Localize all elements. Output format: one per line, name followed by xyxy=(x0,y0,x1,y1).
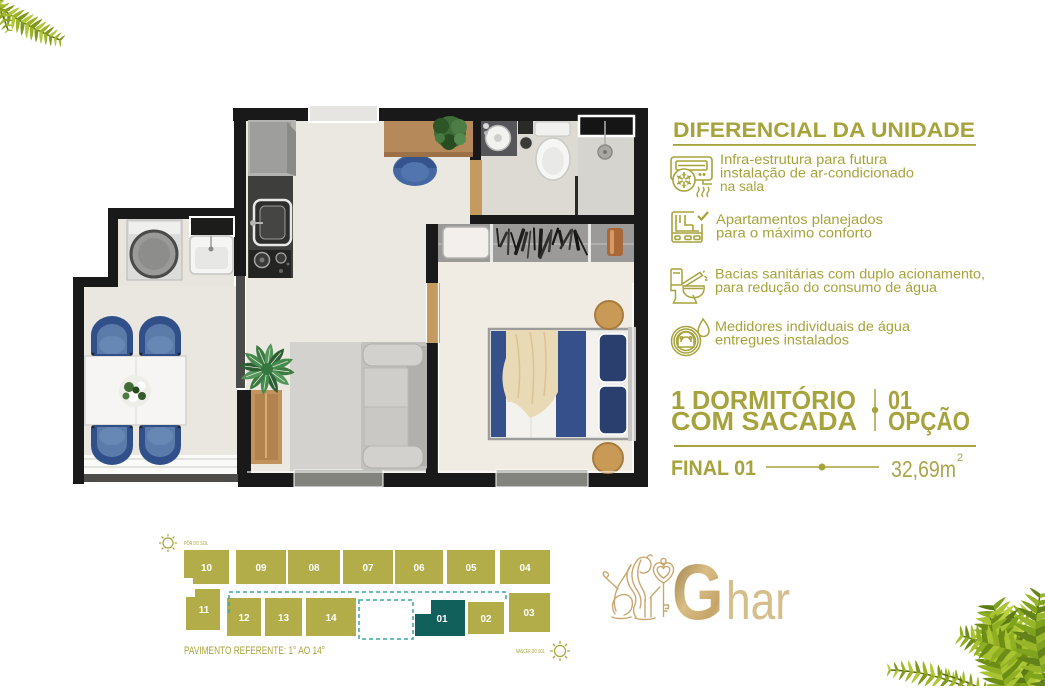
svg-text:G: G xyxy=(672,549,724,637)
svg-text:2: 2 xyxy=(957,452,963,464)
svg-text:32,69m: 32,69m xyxy=(891,456,956,482)
svg-text:DIFERENCIAL DA UNIDADE: DIFERENCIAL DA UNIDADE xyxy=(673,119,975,142)
svg-text:COM SACADA: COM SACADA xyxy=(671,406,857,436)
svg-text:04: 04 xyxy=(519,563,531,574)
svg-text:01: 01 xyxy=(436,614,448,625)
svg-text:na sala: na sala xyxy=(720,179,765,194)
svg-text:13: 13 xyxy=(278,613,290,624)
svg-text:para o máximo conforto: para o máximo conforto xyxy=(716,226,872,241)
svg-text:12: 12 xyxy=(238,613,250,624)
svg-text:05: 05 xyxy=(465,563,477,574)
svg-text:FINAL 01: FINAL 01 xyxy=(671,457,756,480)
svg-text:entregues instalados: entregues instalados xyxy=(715,333,849,348)
svg-text:08: 08 xyxy=(308,563,320,574)
svg-text:PÔR DO SOL: PÔR DO SOL xyxy=(184,540,208,547)
svg-text:para redução do consumo de águ: para redução do consumo de água xyxy=(715,280,938,295)
svg-text:07: 07 xyxy=(362,563,374,574)
svg-text:14: 14 xyxy=(325,613,337,624)
svg-text:06: 06 xyxy=(413,563,425,574)
svg-text:PAVIMENTO REFERENTE: 1° AO 14°: PAVIMENTO REFERENTE: 1° AO 14° xyxy=(184,645,325,657)
svg-text:har: har xyxy=(726,571,790,631)
svg-text:03: 03 xyxy=(523,608,535,619)
svg-text:OPÇÃO: OPÇÃO xyxy=(888,406,970,436)
svg-text:02: 02 xyxy=(480,614,492,625)
svg-text:09: 09 xyxy=(255,563,267,574)
svg-text:NASCER DO SOL: NASCER DO SOL xyxy=(516,649,545,655)
svg-text:11: 11 xyxy=(199,605,210,616)
svg-text:10: 10 xyxy=(201,563,213,574)
